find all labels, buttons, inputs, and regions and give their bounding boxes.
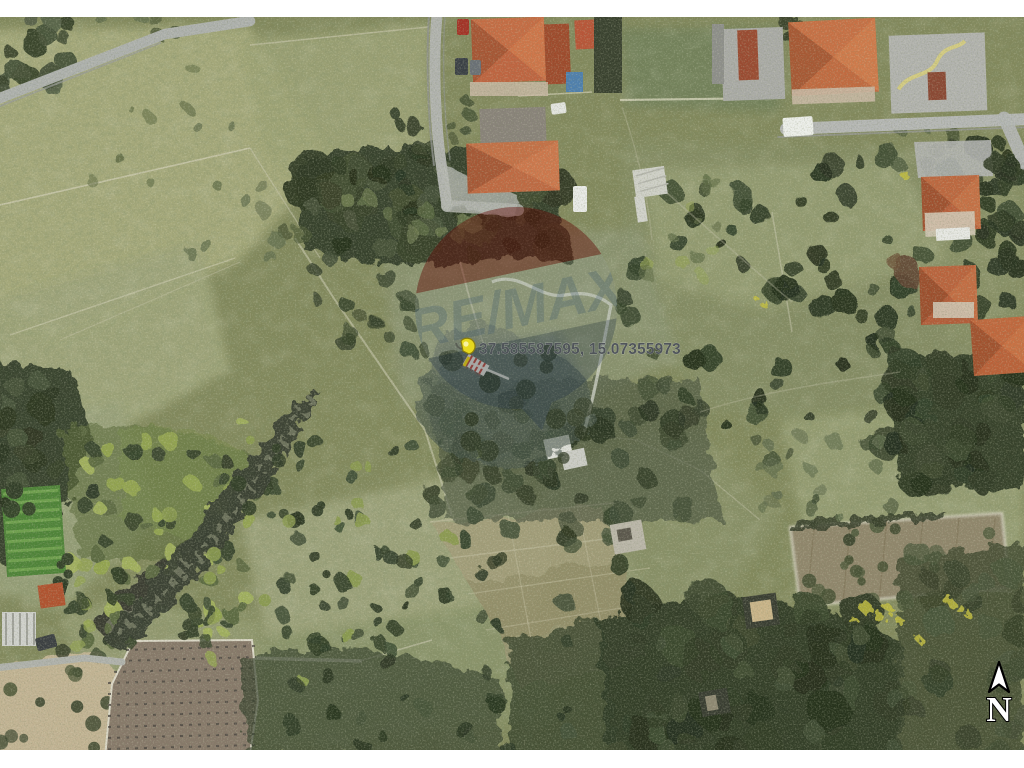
svg-text:N: N (986, 690, 1011, 729)
svg-text:37.585587595, 15.07355973: 37.585587595, 15.07355973 (479, 341, 681, 358)
